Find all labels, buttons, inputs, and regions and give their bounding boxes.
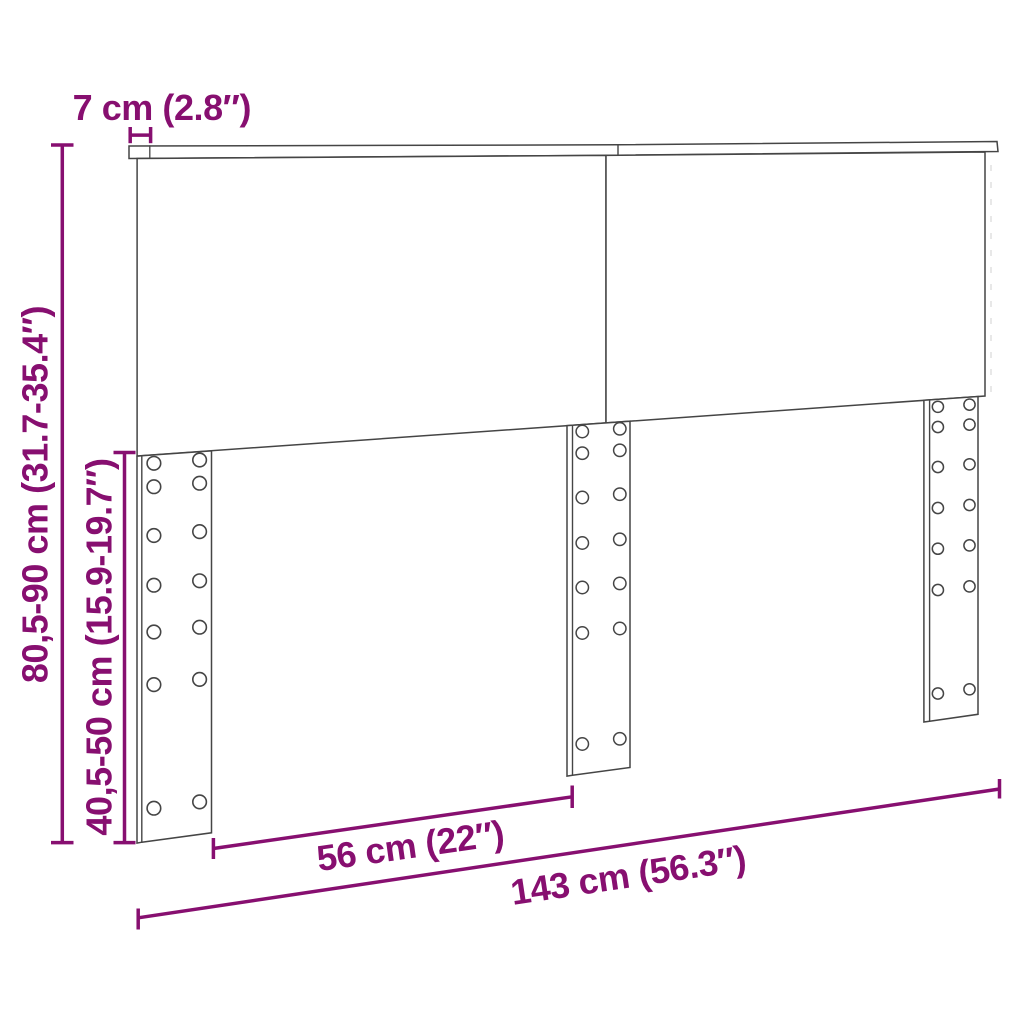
svg-text:7 cm (2.8″): 7 cm (2.8″) — [73, 87, 251, 128]
svg-text:56 cm (22″): 56 cm (22″) — [314, 812, 506, 879]
svg-text:80,5-90 cm (31.7-35.4″): 80,5-90 cm (31.7-35.4″) — [15, 306, 56, 683]
svg-text:143 cm (56.3″): 143 cm (56.3″) — [508, 837, 749, 913]
svg-text:40,5-50 cm (15.9-19.7″): 40,5-50 cm (15.9-19.7″) — [79, 458, 120, 835]
